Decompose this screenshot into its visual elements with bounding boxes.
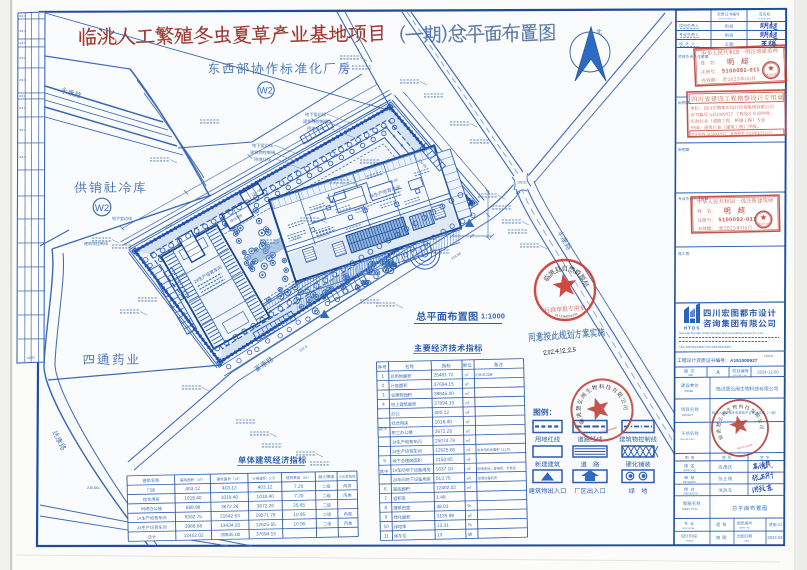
svg-text:7.20: 7.20 <box>294 493 304 499</box>
svg-text:12.31: 12.31 <box>437 523 449 529</box>
svg-text:SUB-PROJECT: SUB-PROJECT <box>680 439 696 441</box>
svg-text:1018.40: 1018.40 <box>256 494 274 500</box>
svg-text:3672.26: 3672.26 <box>435 429 453 435</box>
svg-text:403.12: 403.12 <box>185 486 200 492</box>
svg-text:37694.15: 37694.15 <box>256 531 276 537</box>
svg-text:Sichuan Hongtu Urban Design an: Sichuan Hongtu Urban Design and Consulti… <box>679 331 763 335</box>
svg-text:513.75: 513.75 <box>436 476 451 482</box>
svg-text:12402.02: 12402.02 <box>184 533 204 539</box>
svg-text:25074.78: 25074.78 <box>435 438 455 444</box>
svg-text:403.12: 403.12 <box>258 484 273 490</box>
svg-text:13: 13 <box>437 532 443 538</box>
svg-text:1: 1 <box>381 374 384 380</box>
svg-text:W2: W2 <box>259 86 273 96</box>
svg-text:39845.00: 39845.00 <box>434 391 454 397</box>
svg-text:SIGNATURE: SIGNATURE <box>758 18 771 21</box>
svg-text:3135.99: 3135.99 <box>437 513 455 519</box>
svg-text:48.03: 48.03 <box>436 504 448 510</box>
svg-text:130914: 130914 <box>764 354 774 358</box>
svg-text:13434.20: 13434.20 <box>220 523 240 529</box>
svg-text:2150.85: 2150.85 <box>435 457 453 463</box>
svg-text:11: 11 <box>384 533 389 539</box>
svg-text:25.65: 25.65 <box>293 503 305 509</box>
svg-text:DATE: DATE <box>744 540 750 543</box>
svg-text:39845.00: 39845.00 <box>220 532 240 538</box>
svg-text:3672.26: 3672.26 <box>221 504 239 510</box>
svg-text:10: 10 <box>383 524 389 530</box>
svg-text:CERTIFICATE No.: CERTIFICATE No. <box>718 18 737 21</box>
svg-text:DISCIPLINE: DISCIPLINE <box>682 528 695 530</box>
svg-text:12625.65: 12625.65 <box>256 522 276 528</box>
svg-text:1018.40: 1018.40 <box>184 495 202 501</box>
svg-text:5: 5 <box>383 458 386 464</box>
svg-text:PROJECT: PROJECT <box>682 414 694 417</box>
svg-text:1:1000: 1:1000 <box>481 312 505 321</box>
svg-text:19571.78: 19571.78 <box>256 512 276 518</box>
svg-text:%: % <box>467 503 471 508</box>
svg-text:41.97: 41.97 <box>27 356 35 360</box>
svg-text:2024-12-00: 2024-12-00 <box>757 370 779 375</box>
svg-text:2024.04: 2024.04 <box>767 535 783 540</box>
svg-text:REVIEWED: REVIEWED <box>683 481 696 484</box>
svg-text:3988.68: 3988.68 <box>185 523 203 529</box>
svg-text:6302.75: 6302.75 <box>185 514 203 520</box>
svg-text:9: 9 <box>385 515 388 521</box>
svg-text:1637.10: 1637.10 <box>436 466 454 472</box>
svg-text:4: 4 <box>382 402 385 408</box>
svg-text:PROJECT No.: PROJECT No. <box>733 375 748 377</box>
svg-text:308.81: 308.81 <box>517 181 527 185</box>
svg-text:%: % <box>468 522 472 527</box>
svg-text:7: 7 <box>384 496 387 502</box>
svg-text:7.20: 7.20 <box>294 484 304 490</box>
svg-text:21642.63: 21642.63 <box>220 513 240 519</box>
svg-text:6: 6 <box>384 486 387 492</box>
svg-text:688.98: 688.98 <box>186 505 201 511</box>
svg-text:10.95: 10.95 <box>293 512 305 518</box>
svg-text:OWNER: OWNER <box>684 390 693 393</box>
svg-text:VER.: VER. <box>688 374 694 377</box>
svg-text:37694.15: 37694.15 <box>434 381 454 387</box>
svg-text:8: 8 <box>384 505 387 511</box>
svg-text:400.12: 400.12 <box>434 410 449 416</box>
svg-text:2: 2 <box>382 383 385 389</box>
svg-text:1018.40: 1018.40 <box>435 419 453 425</box>
svg-text:25481.72: 25481.72 <box>433 372 453 378</box>
svg-text:3672.26: 3672.26 <box>257 503 275 509</box>
svg-text:CHECKED BY: CHECKED BY <box>683 493 699 496</box>
svg-text:SHEET TITLE: SHEET TITLE <box>682 508 697 511</box>
svg-text:3: 3 <box>382 392 385 398</box>
svg-text:5100092-011: 5100092-011 <box>718 217 756 224</box>
svg-text:1.48: 1.48 <box>436 495 446 501</box>
svg-text:1018.40: 1018.40 <box>221 495 239 501</box>
svg-text:403.12: 403.12 <box>222 485 237 491</box>
svg-text:10.95: 10.95 <box>293 521 305 527</box>
svg-text:12402.02: 12402.02 <box>436 485 456 491</box>
svg-text:PHASE: PHASE <box>686 540 694 543</box>
svg-text:12625.65: 12625.65 <box>435 447 455 453</box>
svg-text:TEL:028-86124567 FAX:028-8612: TEL:028-86124567 FAX:028-86124567 <box>679 345 732 349</box>
svg-text:W2: W2 <box>95 203 109 214</box>
svg-text:APPROVED: APPROVED <box>683 469 697 472</box>
svg-text:SHEET No.: SHEET No. <box>739 528 751 530</box>
svg-text:236.861: 236.861 <box>87 486 100 490</box>
svg-text:A151000927: A151000927 <box>730 358 758 364</box>
svg-text:HTDS: HTDS <box>684 326 700 331</box>
svg-text:37694.15: 37694.15 <box>434 400 454 406</box>
